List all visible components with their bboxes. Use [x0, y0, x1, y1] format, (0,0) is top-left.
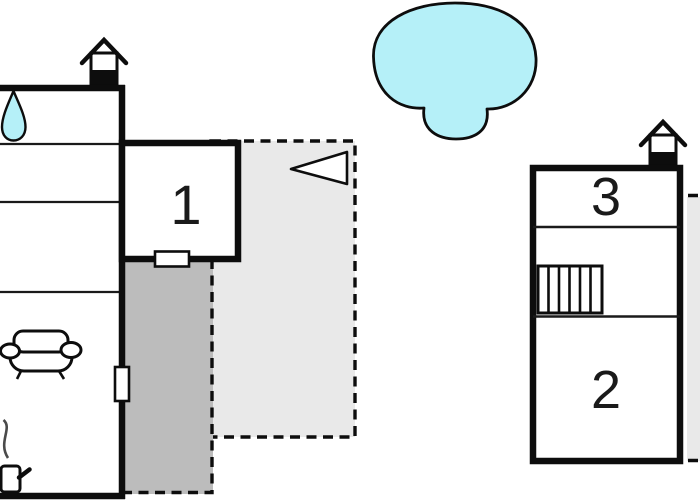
stairs-icon [538, 266, 602, 313]
door-marker [115, 367, 129, 401]
chimney-icon [82, 40, 126, 85]
left-building [0, 85, 125, 499]
chimney-icon [641, 122, 685, 167]
terrace-dark [125, 259, 213, 494]
window-marker [155, 252, 189, 267]
floor-plan-drawing [0, 0, 700, 500]
room-1-label: 1 [170, 177, 201, 233]
pool-shape [373, 3, 536, 139]
floor-plan: 1 2 3 [0, 0, 700, 500]
terrace-right [687, 197, 700, 461]
room-3-label: 3 [591, 170, 621, 224]
room-2-label: 2 [591, 363, 621, 417]
